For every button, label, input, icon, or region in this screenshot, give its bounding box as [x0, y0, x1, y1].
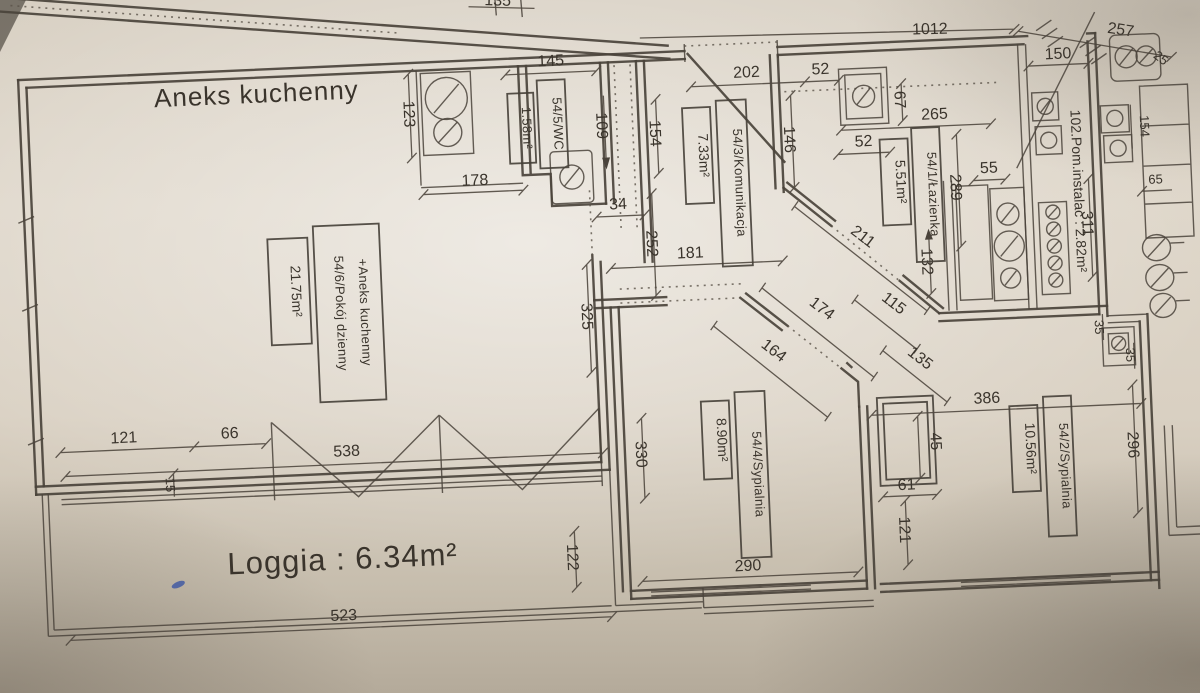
dimension-labels: 145 123 178 109 154 34 252 325 181 202 5… [95, 26, 1195, 634]
loggia-and-windows [40, 386, 1112, 642]
dim-35a: 35 [1092, 320, 1108, 335]
dim-122: 122 [563, 544, 581, 572]
wall-bedroom4-south [631, 581, 867, 599]
dotted-bedroom4-door [620, 284, 742, 303]
dim-61: 61 [897, 476, 916, 494]
dim-211: 211 [847, 222, 878, 251]
dim-181: 181 [677, 244, 705, 262]
room-543-area: 7.33m² [695, 133, 713, 178]
door-dotted-2 [684, 42, 777, 46]
dim-164: 164 [758, 336, 790, 366]
dim-202: 202 [733, 64, 761, 82]
dim-45: 45 [926, 432, 944, 451]
vent-hatch-1 [1036, 20, 1064, 48]
dim-line-1012 [640, 15, 1019, 47]
room-542-area: 10.56m² [1022, 422, 1040, 474]
dim-325: 325 [577, 303, 595, 331]
paper-corner-shadow [0, 0, 26, 52]
room-543-name: 54/3/Komunikacja [730, 128, 750, 237]
dim-538: 538 [333, 443, 361, 461]
wall-bedroom2-east [1139, 314, 1159, 588]
loggia-label: Loggia : 6.34m² [227, 536, 459, 581]
wall-diagonal-bedroom4 [740, 289, 859, 412]
dim-290: 290 [734, 557, 762, 575]
dim-55: 55 [980, 159, 999, 177]
dim-67: 67 [890, 90, 908, 109]
dim-178: 178 [461, 172, 489, 190]
room-541-area: 5.51m² [892, 160, 910, 205]
installation-pipes [1018, 43, 1072, 310]
dim-145: 145 [537, 52, 565, 70]
dim-52-laz: 52 [854, 133, 873, 151]
dim-252: 252 [642, 230, 660, 258]
dim-109: 109 [592, 112, 610, 140]
corridor-wall-line [0, 0, 668, 46]
dim-523: 523 [330, 607, 358, 625]
ink-mark [171, 579, 186, 590]
wall-lazienka-west [770, 55, 784, 192]
dim-1012: 1012 [912, 21, 948, 39]
dim-174: 174 [806, 294, 838, 324]
wall-install-east [1087, 33, 1107, 316]
corridor-wall-line2 [0, 11, 670, 58]
wall-bedroom4-stub [594, 297, 666, 308]
apartment-plan: 145 123 178 109 154 34 252 325 181 202 5… [12, 22, 1200, 647]
wall-west [18, 80, 44, 495]
dim-330: 330 [631, 441, 649, 469]
vent-hatch-2 [1079, 37, 1107, 65]
dim-289: 289 [946, 174, 964, 202]
dimension-lines [39, 36, 1189, 646]
dim-15: 15 [163, 477, 179, 492]
room-545-area: 1.58m² [519, 107, 536, 150]
room-541-name: 54/1/Łazienka [924, 152, 943, 238]
wall-living-east [592, 255, 609, 470]
room-544-name: 54/4/Sypialnia [749, 431, 768, 518]
toilet-symbol [550, 150, 594, 204]
corridor-dotted-line [10, 6, 400, 34]
room-546-area: 21.75m² [287, 265, 305, 317]
dim-123: 123 [399, 100, 417, 128]
dim-line-174 [759, 278, 878, 386]
dim-66: 66 [220, 425, 239, 443]
dim-line-386 [866, 398, 1146, 420]
dim-135-top: 135 [484, 0, 511, 10]
room-546-name: 54/6/Pokój dzienny [331, 255, 351, 371]
floor-plan-photo: 135 1012 257 [0, 0, 1200, 693]
room-546-name-box [313, 224, 387, 403]
wall-install-south [939, 306, 1107, 321]
dim-35b: 35 [1123, 347, 1139, 362]
wall-bedroom2-north-notch [1107, 314, 1147, 323]
dim-150: 150 [1044, 45, 1072, 63]
bedroom4-sill [704, 600, 874, 613]
room-546-name2: +Aneks kuchenny [355, 258, 375, 366]
neighbor-fixtures [1097, 32, 1200, 537]
washing-machine-symbol [838, 67, 888, 125]
walls [12, 31, 1159, 636]
dim-34: 34 [609, 196, 628, 214]
door-jambs [684, 40, 778, 62]
wall-kitchen [416, 66, 523, 187]
room-544-area: 8.90m² [714, 418, 732, 463]
dim-121a: 121 [110, 429, 138, 447]
dim-52-ent: 52 [811, 61, 830, 79]
dim-154n: 154 [1137, 115, 1153, 137]
room-102-name: 102.Pom.instalac : 2.82m² [1067, 109, 1090, 273]
window-swing-symbols [271, 408, 602, 500]
wall-bedroom2-south [881, 572, 1159, 592]
dim-line-45 [912, 411, 925, 483]
wall-between-bedrooms [859, 406, 875, 588]
kitchen-sink-symbol [420, 71, 474, 155]
room-542-name: 54/2/Sypialnia [1056, 423, 1075, 510]
dim-265: 265 [921, 106, 949, 124]
dim-146: 146 [780, 126, 798, 154]
dim-296: 296 [1124, 431, 1142, 459]
dim-121b: 121 [895, 516, 913, 544]
dim-65: 65 [1148, 171, 1163, 187]
dim-135: 135 [904, 344, 936, 374]
dotted-living-opening [589, 190, 592, 258]
room-545-name: 54/5/WC [549, 97, 566, 150]
dim-154: 154 [645, 120, 663, 148]
dim-386: 386 [973, 390, 1001, 408]
